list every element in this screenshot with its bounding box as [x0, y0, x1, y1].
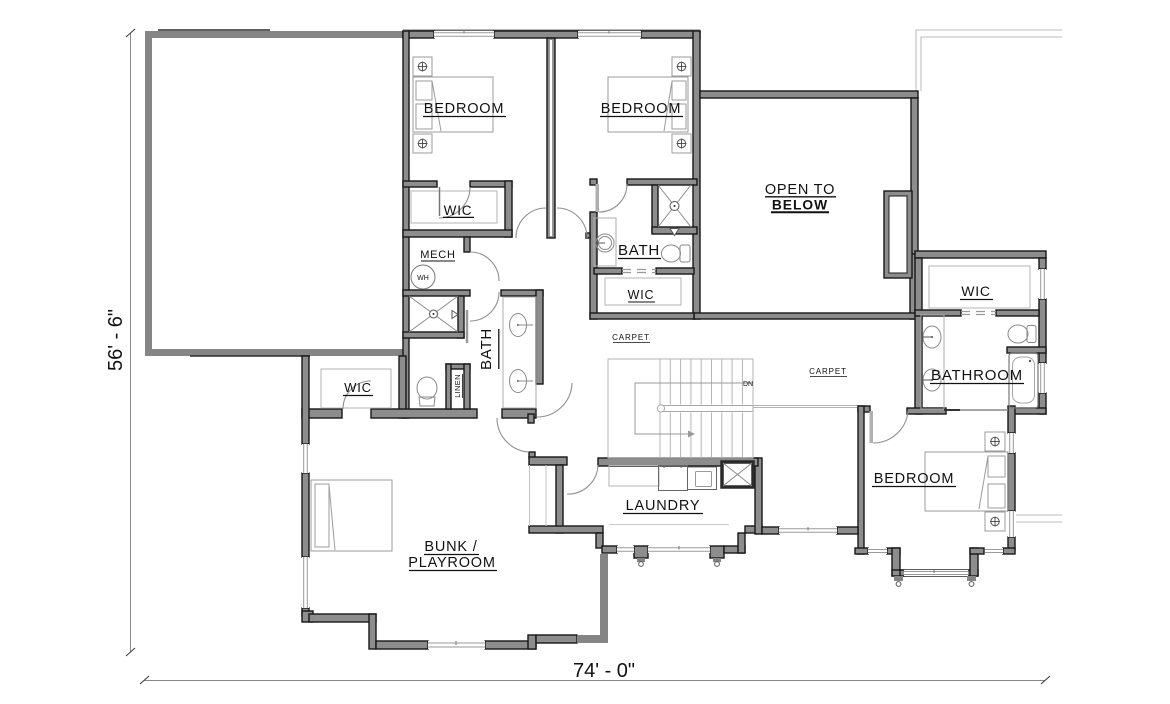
svg-text:LAUNDRY: LAUNDRY	[626, 498, 701, 514]
svg-text:BEDROOM: BEDROOM	[424, 101, 505, 117]
svg-text:BELOW: BELOW	[772, 198, 828, 213]
svg-text:56' - 6": 56' - 6"	[105, 309, 127, 371]
svg-text:WIC: WIC	[444, 203, 473, 218]
svg-text:OPEN TO: OPEN TO	[765, 182, 835, 198]
svg-text:WIC: WIC	[961, 283, 991, 299]
svg-text:WIC: WIC	[344, 380, 372, 395]
svg-text:WIC: WIC	[628, 288, 655, 302]
svg-text:WH: WH	[417, 275, 429, 282]
svg-text:CARPET: CARPET	[809, 367, 847, 376]
svg-text:PLAYROOM: PLAYROOM	[408, 555, 496, 571]
svg-text:BATH: BATH	[618, 242, 660, 259]
svg-text:BATHROOM: BATHROOM	[931, 367, 1023, 384]
svg-text:MECH: MECH	[420, 249, 456, 261]
svg-text:74' - 0": 74' - 0"	[573, 660, 635, 682]
svg-text:BEDROOM: BEDROOM	[601, 101, 682, 117]
svg-text:DN: DN	[743, 381, 753, 388]
svg-text:LINEN: LINEN	[453, 374, 462, 398]
svg-text:CARPET: CARPET	[612, 333, 650, 342]
svg-text:BEDROOM: BEDROOM	[874, 471, 955, 487]
svg-text:BUNK /: BUNK /	[424, 539, 477, 555]
svg-text:BATH: BATH	[478, 328, 495, 370]
